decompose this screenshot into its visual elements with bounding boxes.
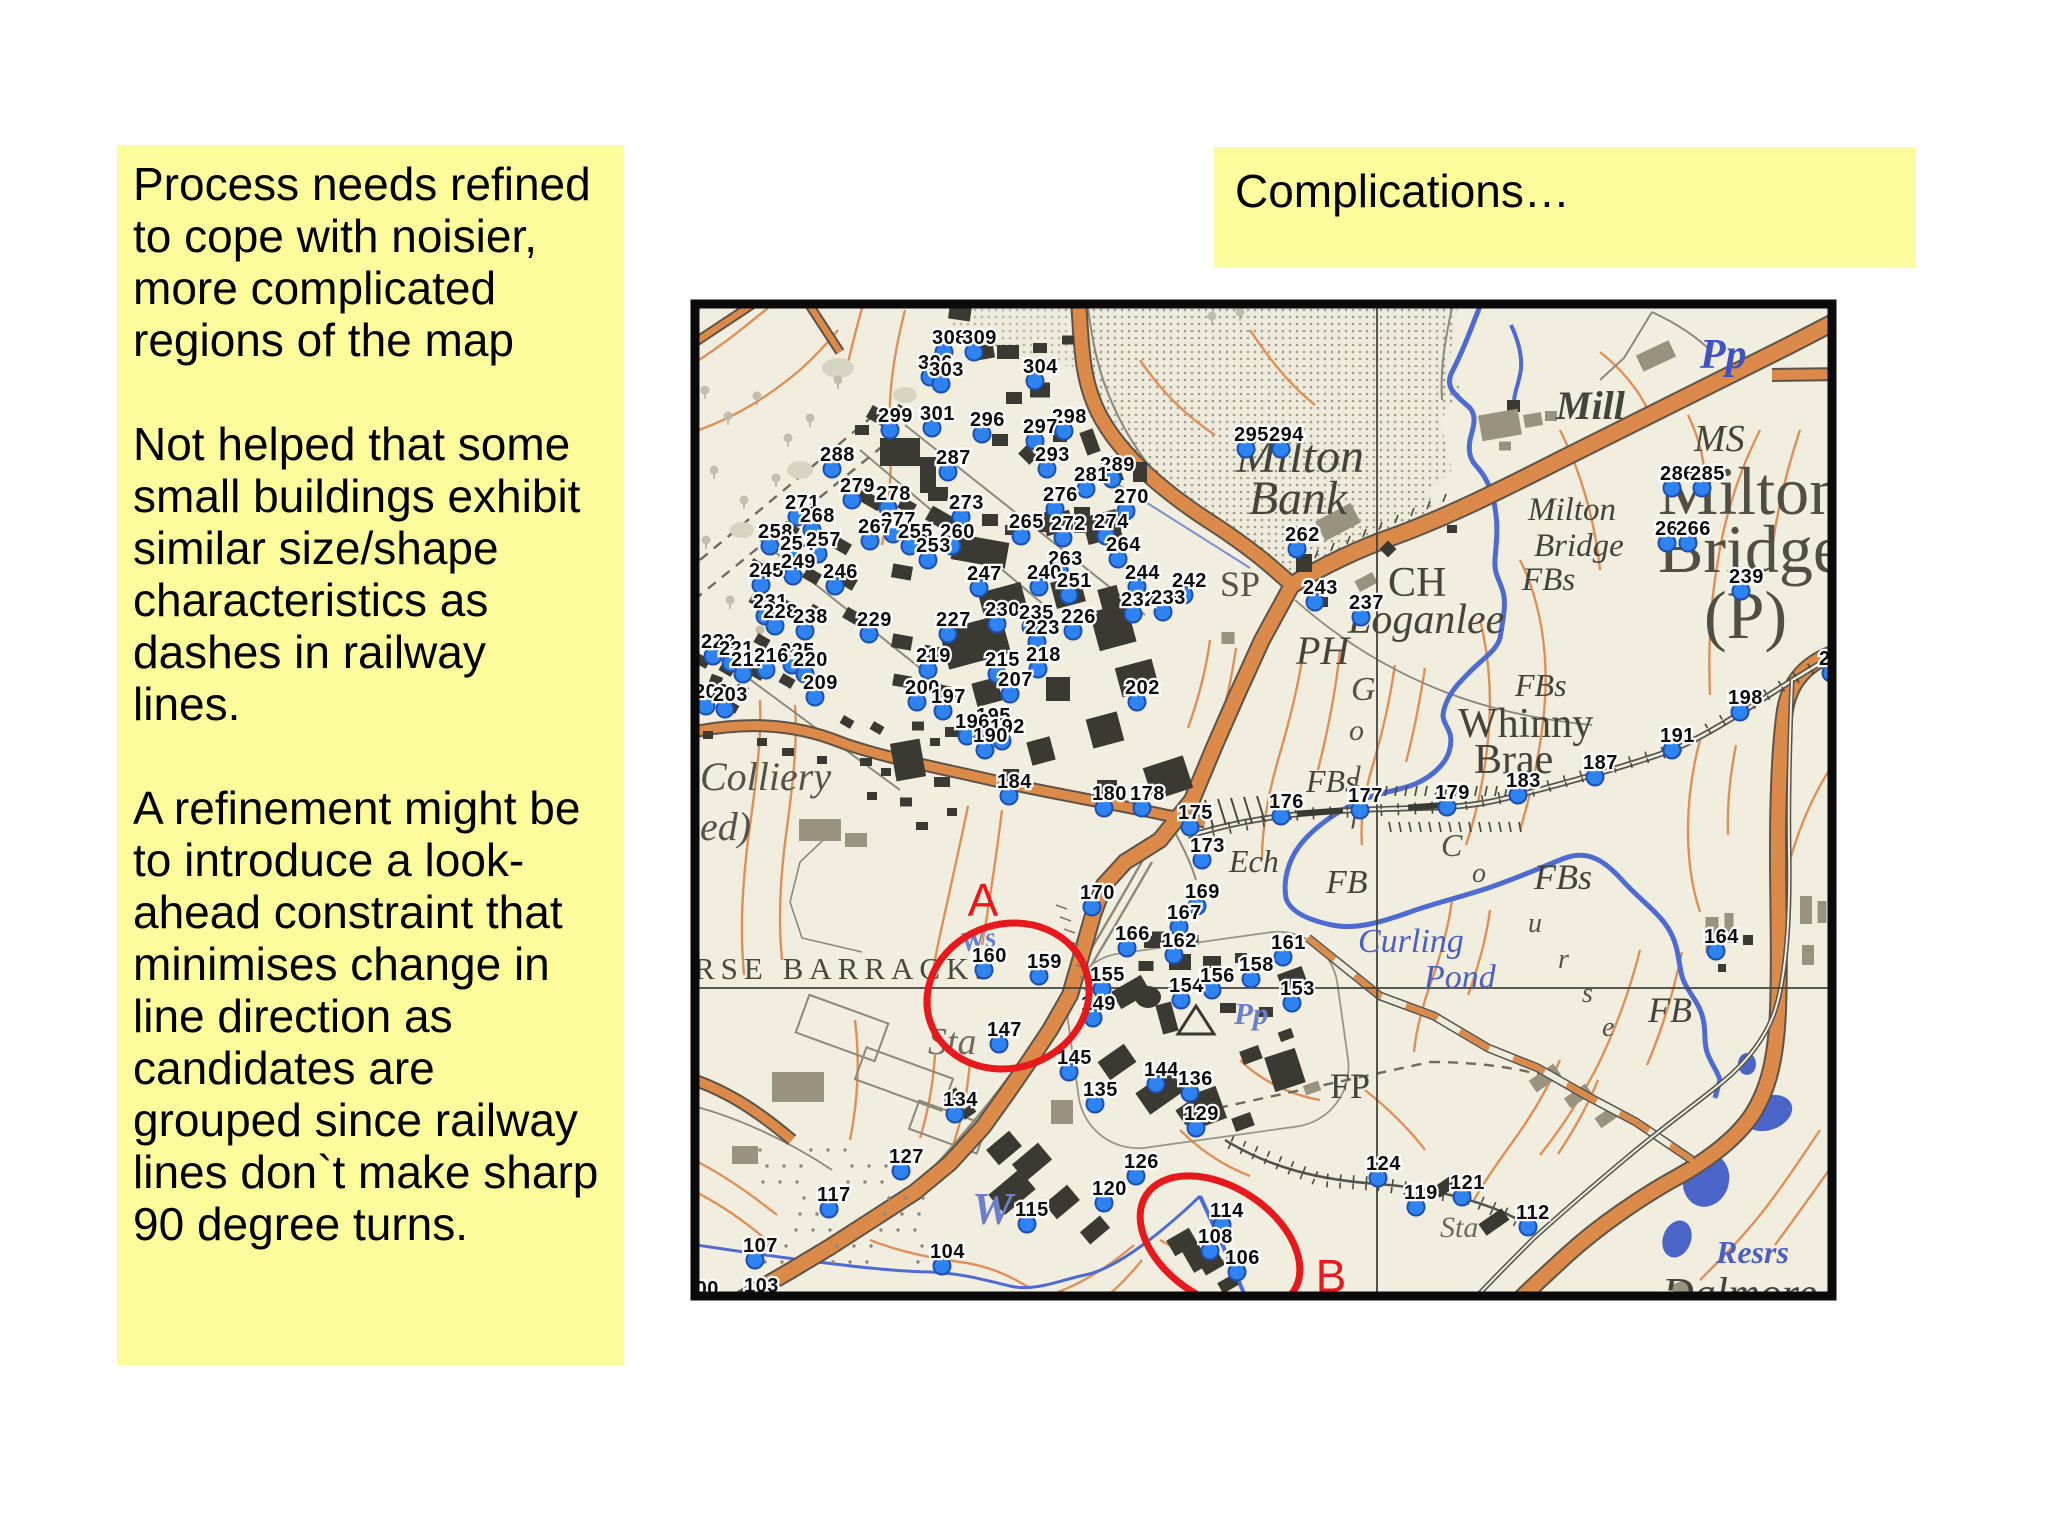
svg-text:Sta: Sta	[1440, 1211, 1478, 1244]
svg-text:216: 216	[754, 645, 789, 667]
svg-text:173: 173	[1190, 835, 1225, 857]
svg-text:226: 226	[1061, 606, 1096, 628]
svg-text:FBs: FBs	[1533, 857, 1592, 897]
svg-text:239: 239	[1729, 566, 1764, 588]
svg-text:281: 281	[1074, 464, 1109, 486]
svg-text:227: 227	[936, 609, 971, 631]
svg-text:170: 170	[1080, 882, 1115, 904]
svg-text:117: 117	[817, 1184, 851, 1206]
svg-text:104: 104	[930, 1241, 965, 1263]
svg-text:209: 209	[803, 672, 838, 694]
svg-text:233: 233	[1151, 587, 1186, 609]
svg-text:245: 245	[749, 560, 784, 582]
svg-text:299: 299	[878, 405, 913, 427]
svg-text:198: 198	[1728, 687, 1763, 709]
svg-text:267: 267	[858, 516, 893, 538]
svg-text:FP: FP	[1330, 1066, 1370, 1106]
svg-text:243: 243	[1303, 577, 1338, 599]
svg-text:184: 184	[997, 771, 1032, 793]
svg-text:246: 246	[823, 561, 858, 583]
svg-text:197: 197	[931, 686, 966, 708]
svg-text:126: 126	[1124, 1151, 1159, 1173]
svg-text:276: 276	[1043, 484, 1078, 506]
svg-text:295: 295	[1234, 424, 1269, 446]
svg-text:166: 166	[1115, 923, 1150, 945]
svg-text:180: 180	[1092, 783, 1127, 805]
svg-text:244: 244	[1125, 562, 1160, 584]
svg-text:219: 219	[916, 645, 951, 667]
svg-text:164: 164	[1704, 926, 1739, 948]
svg-text:108: 108	[1198, 1226, 1233, 1248]
svg-text:294: 294	[1269, 424, 1304, 446]
svg-text:288: 288	[820, 444, 855, 466]
svg-text:301: 301	[920, 403, 955, 425]
svg-text:Ech: Ech	[1228, 843, 1279, 879]
svg-text:154: 154	[1169, 975, 1204, 997]
svg-text:303: 303	[929, 359, 964, 381]
svg-text:Resrs: Resrs	[1715, 1234, 1789, 1270]
svg-text:120: 120	[1092, 1178, 1127, 1200]
svg-text:Pond: Pond	[1423, 959, 1497, 996]
svg-text:202: 202	[1125, 677, 1160, 699]
svg-text:A: A	[968, 874, 999, 926]
svg-text:229: 229	[857, 609, 892, 631]
svg-text:175: 175	[1178, 802, 1213, 824]
svg-text:177: 177	[1348, 785, 1383, 807]
svg-text:278: 278	[876, 483, 911, 505]
svg-text:262: 262	[1285, 524, 1320, 546]
svg-text:176: 176	[1269, 791, 1304, 813]
svg-text:158: 158	[1239, 954, 1274, 976]
svg-text:136: 136	[1178, 1068, 1213, 1090]
svg-text:112: 112	[1516, 1202, 1550, 1224]
svg-text:106: 106	[1225, 1247, 1260, 1269]
svg-text:169: 169	[1185, 881, 1220, 903]
svg-text:279: 279	[840, 475, 875, 497]
svg-text:FBs: FBs	[1521, 562, 1575, 598]
svg-text:Pp: Pp	[1233, 996, 1268, 1031]
svg-text:Milton: Milton	[1527, 492, 1616, 528]
svg-text:C: C	[1441, 827, 1463, 863]
svg-text:115: 115	[1015, 1199, 1049, 1221]
svg-text:FB: FB	[1325, 864, 1368, 901]
svg-text:Colliery: Colliery	[700, 754, 831, 799]
svg-text:285: 285	[1690, 463, 1725, 485]
svg-text:287: 287	[936, 447, 971, 469]
svg-text:W: W	[972, 1183, 1016, 1234]
svg-text:Mill: Mill	[1555, 383, 1626, 428]
svg-text:ed): ed)	[700, 804, 751, 849]
svg-text:114: 114	[1210, 1200, 1244, 1222]
svg-text:Pp: Pp	[1699, 332, 1747, 378]
svg-text:304: 304	[1023, 356, 1058, 378]
svg-text:SP: SP	[1220, 564, 1260, 604]
svg-text:179: 179	[1435, 782, 1470, 804]
svg-text:178: 178	[1130, 783, 1165, 805]
svg-text:153: 153	[1280, 978, 1315, 1000]
svg-text:203: 203	[713, 684, 748, 706]
svg-text:247: 247	[967, 563, 1002, 585]
svg-text:296: 296	[970, 409, 1005, 431]
svg-text:Bridge: Bridge	[1534, 528, 1624, 564]
svg-text:274: 274	[1094, 511, 1129, 533]
svg-text:s: s	[1582, 978, 1593, 1009]
svg-text:147: 147	[987, 1019, 1022, 1041]
svg-text:155: 155	[1090, 964, 1125, 986]
svg-text:159: 159	[1027, 951, 1062, 973]
svg-text:PH: PH	[1295, 628, 1351, 673]
svg-text:272: 272	[1051, 513, 1086, 535]
svg-text:187: 187	[1583, 752, 1618, 774]
svg-text:230: 230	[985, 599, 1020, 621]
svg-text:107: 107	[743, 1235, 778, 1257]
svg-text:G: G	[1351, 671, 1376, 708]
svg-text:134: 134	[943, 1089, 978, 1111]
svg-text:127: 127	[889, 1146, 924, 1168]
svg-text:265: 265	[1009, 511, 1044, 533]
svg-text:207: 207	[998, 669, 1033, 691]
svg-text:FB: FB	[1647, 990, 1692, 1030]
svg-text:RSE BARRACKS: RSE BARRACKS	[694, 951, 998, 986]
svg-text:r: r	[1558, 944, 1569, 975]
svg-text:264: 264	[1106, 534, 1141, 556]
svg-text:237: 237	[1349, 592, 1384, 614]
svg-text:129: 129	[1184, 1103, 1219, 1125]
svg-text:220: 220	[793, 649, 828, 671]
svg-text:249: 249	[781, 551, 816, 573]
svg-text:o: o	[1349, 714, 1364, 747]
svg-text:160: 160	[972, 945, 1007, 967]
svg-text:119: 119	[1404, 1182, 1438, 1204]
svg-text:253: 253	[916, 535, 951, 557]
svg-text:273: 273	[949, 492, 984, 514]
svg-text:144: 144	[1144, 1059, 1179, 1081]
svg-text:Curling: Curling	[1358, 923, 1464, 960]
svg-text:u: u	[1528, 908, 1542, 939]
svg-text:162: 162	[1162, 930, 1197, 952]
svg-text:135: 135	[1083, 1079, 1118, 1101]
svg-text:297: 297	[1023, 416, 1058, 438]
svg-text:e: e	[1602, 1012, 1614, 1043]
svg-text:257: 257	[806, 529, 841, 551]
svg-text:251: 251	[1057, 570, 1092, 592]
svg-text:266: 266	[1676, 518, 1711, 540]
svg-text:218: 218	[1026, 644, 1061, 666]
svg-text:121: 121	[1450, 1172, 1485, 1194]
svg-text:167: 167	[1167, 902, 1202, 924]
svg-text:161: 161	[1271, 932, 1306, 954]
svg-text:215: 215	[985, 649, 1020, 671]
svg-text:238: 238	[793, 606, 828, 628]
svg-text:124: 124	[1366, 1153, 1401, 1175]
svg-text:Bank: Bank	[1249, 472, 1349, 525]
svg-text:191: 191	[1660, 725, 1695, 747]
svg-text:268: 268	[800, 505, 835, 527]
svg-text:190: 190	[973, 725, 1008, 747]
svg-text:270: 270	[1114, 486, 1149, 508]
svg-text:o: o	[1472, 858, 1486, 889]
svg-text:309: 309	[962, 327, 997, 349]
svg-text:FBs: FBs	[1514, 667, 1567, 703]
svg-text:183: 183	[1506, 770, 1541, 792]
svg-text:223: 223	[1025, 617, 1060, 639]
svg-text:156: 156	[1200, 965, 1235, 987]
svg-text:293: 293	[1035, 444, 1070, 466]
